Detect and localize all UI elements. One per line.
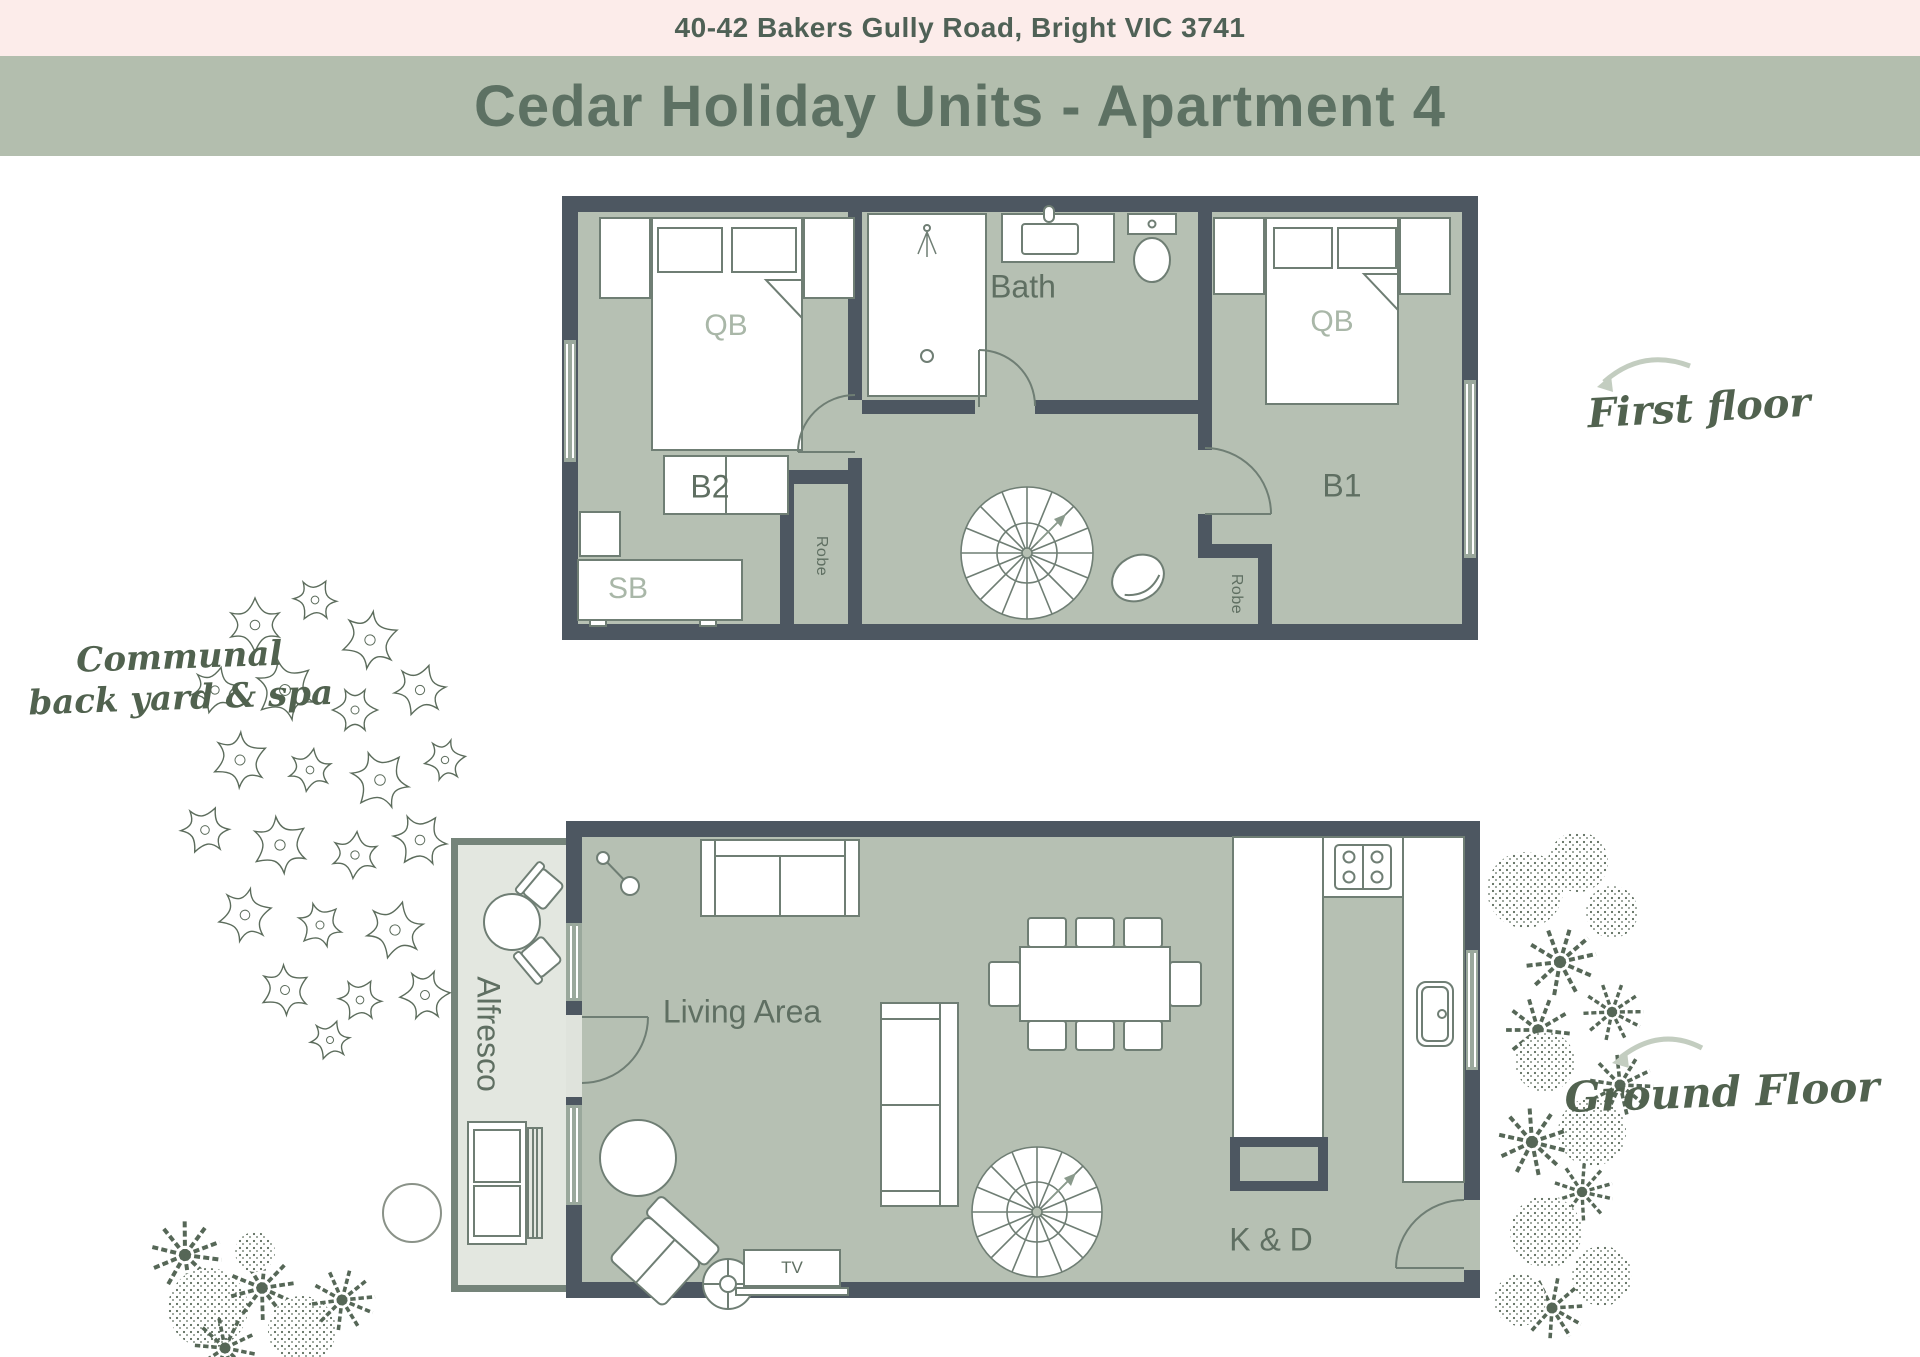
dining-chair	[1076, 918, 1114, 947]
outdoor-table	[484, 894, 540, 950]
pillow	[658, 228, 722, 272]
bed-label-qb-b2: QB	[704, 309, 747, 343]
sofa-back	[715, 840, 845, 856]
spiral-stair-first	[961, 487, 1093, 619]
room-label-bath: Bath	[990, 269, 1056, 306]
toilet-bowl	[1134, 238, 1170, 282]
pantry	[1235, 1142, 1323, 1186]
dining-table	[1020, 947, 1170, 1021]
toilet-tank	[1128, 214, 1176, 234]
dining-chair	[1028, 1021, 1066, 1050]
dining-chair	[1170, 962, 1201, 1006]
tv-unit-base	[736, 1288, 848, 1295]
round-shrub	[383, 1184, 441, 1242]
sofa-arm	[701, 840, 715, 916]
nightstand	[804, 218, 854, 298]
ground-floor-arrow	[1620, 1039, 1702, 1058]
robe-label-left: Robe	[812, 536, 830, 576]
sofa-seat	[715, 856, 780, 916]
pouf	[600, 1120, 676, 1196]
communal-yard-note: Communal back yard & spa	[26, 632, 333, 724]
room-label-b1: B1	[1322, 468, 1361, 505]
bed-sb	[578, 560, 742, 620]
robe-label-right: Robe	[1227, 574, 1245, 614]
tv-label: TV	[781, 1258, 803, 1278]
pillow	[732, 228, 796, 272]
sofa-arm	[845, 840, 859, 916]
dining-chair	[1124, 1021, 1162, 1050]
room-label-kd: K & D	[1229, 1222, 1313, 1259]
dining-chair	[1028, 918, 1066, 947]
nightstand	[600, 218, 650, 298]
nightstand	[1400, 218, 1450, 294]
room-label-alfresco: Alfresco	[470, 976, 507, 1092]
side-table	[580, 512, 620, 556]
sofa-back	[940, 1003, 958, 1206]
pillow	[1338, 228, 1396, 268]
ground-floor-plan	[383, 821, 1480, 1310]
dining-chair	[1124, 918, 1162, 947]
dining-chair	[989, 962, 1020, 1006]
floor-plan-page: 40-42 Bakers Gully Road, Bright VIC 3741…	[0, 0, 1920, 1357]
bed-label-qb-b1: QB	[1310, 305, 1353, 339]
first-floor-plan	[562, 196, 1478, 640]
spiral-stair-ground	[972, 1147, 1102, 1277]
nightstand	[1214, 218, 1264, 294]
annotation-arrows	[1597, 360, 1702, 1068]
bed-label-sb: SB	[608, 572, 648, 606]
room-label-living: Living Area	[663, 994, 821, 1031]
sofa-seat	[881, 1105, 940, 1191]
tap	[1044, 206, 1054, 222]
kitchen-wall-bench	[1403, 837, 1464, 1182]
pillow	[1274, 228, 1332, 268]
kitchen-island	[1233, 837, 1323, 1142]
dining-chair	[1076, 1021, 1114, 1050]
room-label-b2: B2	[690, 469, 729, 506]
sofa-seat	[780, 856, 845, 916]
sofa-seat	[881, 1019, 940, 1105]
first-floor-arrow	[1604, 360, 1690, 382]
bottom-left-garden	[140, 1211, 387, 1357]
